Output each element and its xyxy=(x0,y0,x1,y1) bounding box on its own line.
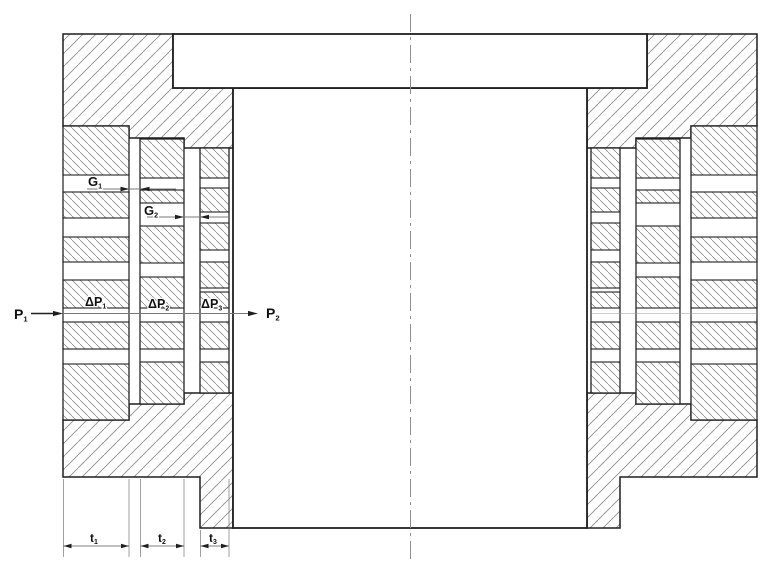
seal-ring-3-left-tooth-2 xyxy=(200,188,229,212)
seal-ring-3-left-tooth-7 xyxy=(200,362,229,393)
seal-ring-2-left-tooth-3 xyxy=(140,226,184,263)
seal-ring-2-right-tooth-1 xyxy=(636,139,680,178)
seal-ring-1-left-tooth-5 xyxy=(63,322,129,349)
seal-ring-3-right-tooth-7 xyxy=(591,362,620,393)
seal-ring-3-right-tooth-2 xyxy=(591,188,620,212)
label-p1: P1 xyxy=(14,306,28,324)
seal-ring-2-left-tooth-2 xyxy=(140,190,184,203)
seal-ring-3-right-tooth-1 xyxy=(591,148,620,178)
seal-ring-1-right-tooth-3 xyxy=(691,237,757,262)
seal-ring-3-left-tooth-6 xyxy=(200,322,229,349)
seal-ring-2-right-tooth-3 xyxy=(636,226,680,263)
dim-t1-arrow-right xyxy=(121,544,129,548)
seal-ring-1-left-tooth-2 xyxy=(63,192,129,218)
seal-ring-2-left-tooth-6 xyxy=(140,362,184,404)
seal-ring-2-left-tooth-5 xyxy=(140,322,184,349)
dim-t3-arrow-right xyxy=(221,544,229,548)
seal-ring-2-right-tooth-5 xyxy=(636,322,680,349)
seal-ring-2-right xyxy=(636,139,680,404)
seal-ring-2-right-tooth-6 xyxy=(636,362,680,404)
seal-ring-1-right-tooth-2 xyxy=(691,192,757,218)
dim-t1-label: t1 xyxy=(90,531,98,546)
seal-ring-3-left xyxy=(200,148,229,393)
seal-ring-3-right-tooth-6 xyxy=(591,322,620,349)
seal-ring-3-right xyxy=(591,148,620,393)
seal-ring-1-right-tooth-4 xyxy=(691,280,757,308)
dim-t2: t2 xyxy=(141,479,185,557)
seal-ring-3-right-tooth-3 xyxy=(591,223,620,250)
seal-ring-1-left-tooth-1 xyxy=(63,126,129,175)
seal-ring-2-right-tooth-4 xyxy=(636,277,680,308)
seal-ring-3-left-tooth-1 xyxy=(200,148,229,178)
dim-t2-arrow-right xyxy=(176,544,184,548)
seal-ring-1-right xyxy=(691,126,757,420)
dim-t3-arrow-left xyxy=(201,544,209,548)
seal-ring-3-left-tooth-3 xyxy=(200,223,229,250)
dim-t3-label: t3 xyxy=(209,531,217,546)
dim-t2-label: t2 xyxy=(158,531,166,546)
seal-ring-3-left-tooth-4 xyxy=(200,262,229,288)
seal-ring-1-left-tooth-3 xyxy=(63,237,129,262)
seal-ring-1-right-tooth-5 xyxy=(691,322,757,349)
seal-ring-3-right-tooth-4 xyxy=(591,262,620,288)
seal-ring-2-left-tooth-1 xyxy=(140,139,184,178)
p1-arrowhead xyxy=(53,311,63,316)
seal-ring-1-left-tooth-6 xyxy=(63,364,129,420)
dim-t1: t1 xyxy=(64,479,130,557)
seal-ring-1-left xyxy=(63,126,129,420)
seal-ring-2-right-tooth-2 xyxy=(636,190,680,203)
dim-t1-arrow-left xyxy=(64,544,72,548)
drawing-svg: t1t2t3P1P2G1G2ΔP1ΔP2ΔP3 xyxy=(0,0,769,563)
seal-ring-3-right-tooth-5 xyxy=(591,292,620,308)
seal-ring-1-right-tooth-1 xyxy=(691,126,757,175)
dim-t2-arrow-left xyxy=(141,544,149,548)
seal-ring-2-left xyxy=(140,139,184,404)
seal-ring-1-right-tooth-6 xyxy=(691,364,757,420)
labyrinth-seal-drawing: t1t2t3P1P2G1G2ΔP1ΔP2ΔP3 xyxy=(0,0,769,563)
